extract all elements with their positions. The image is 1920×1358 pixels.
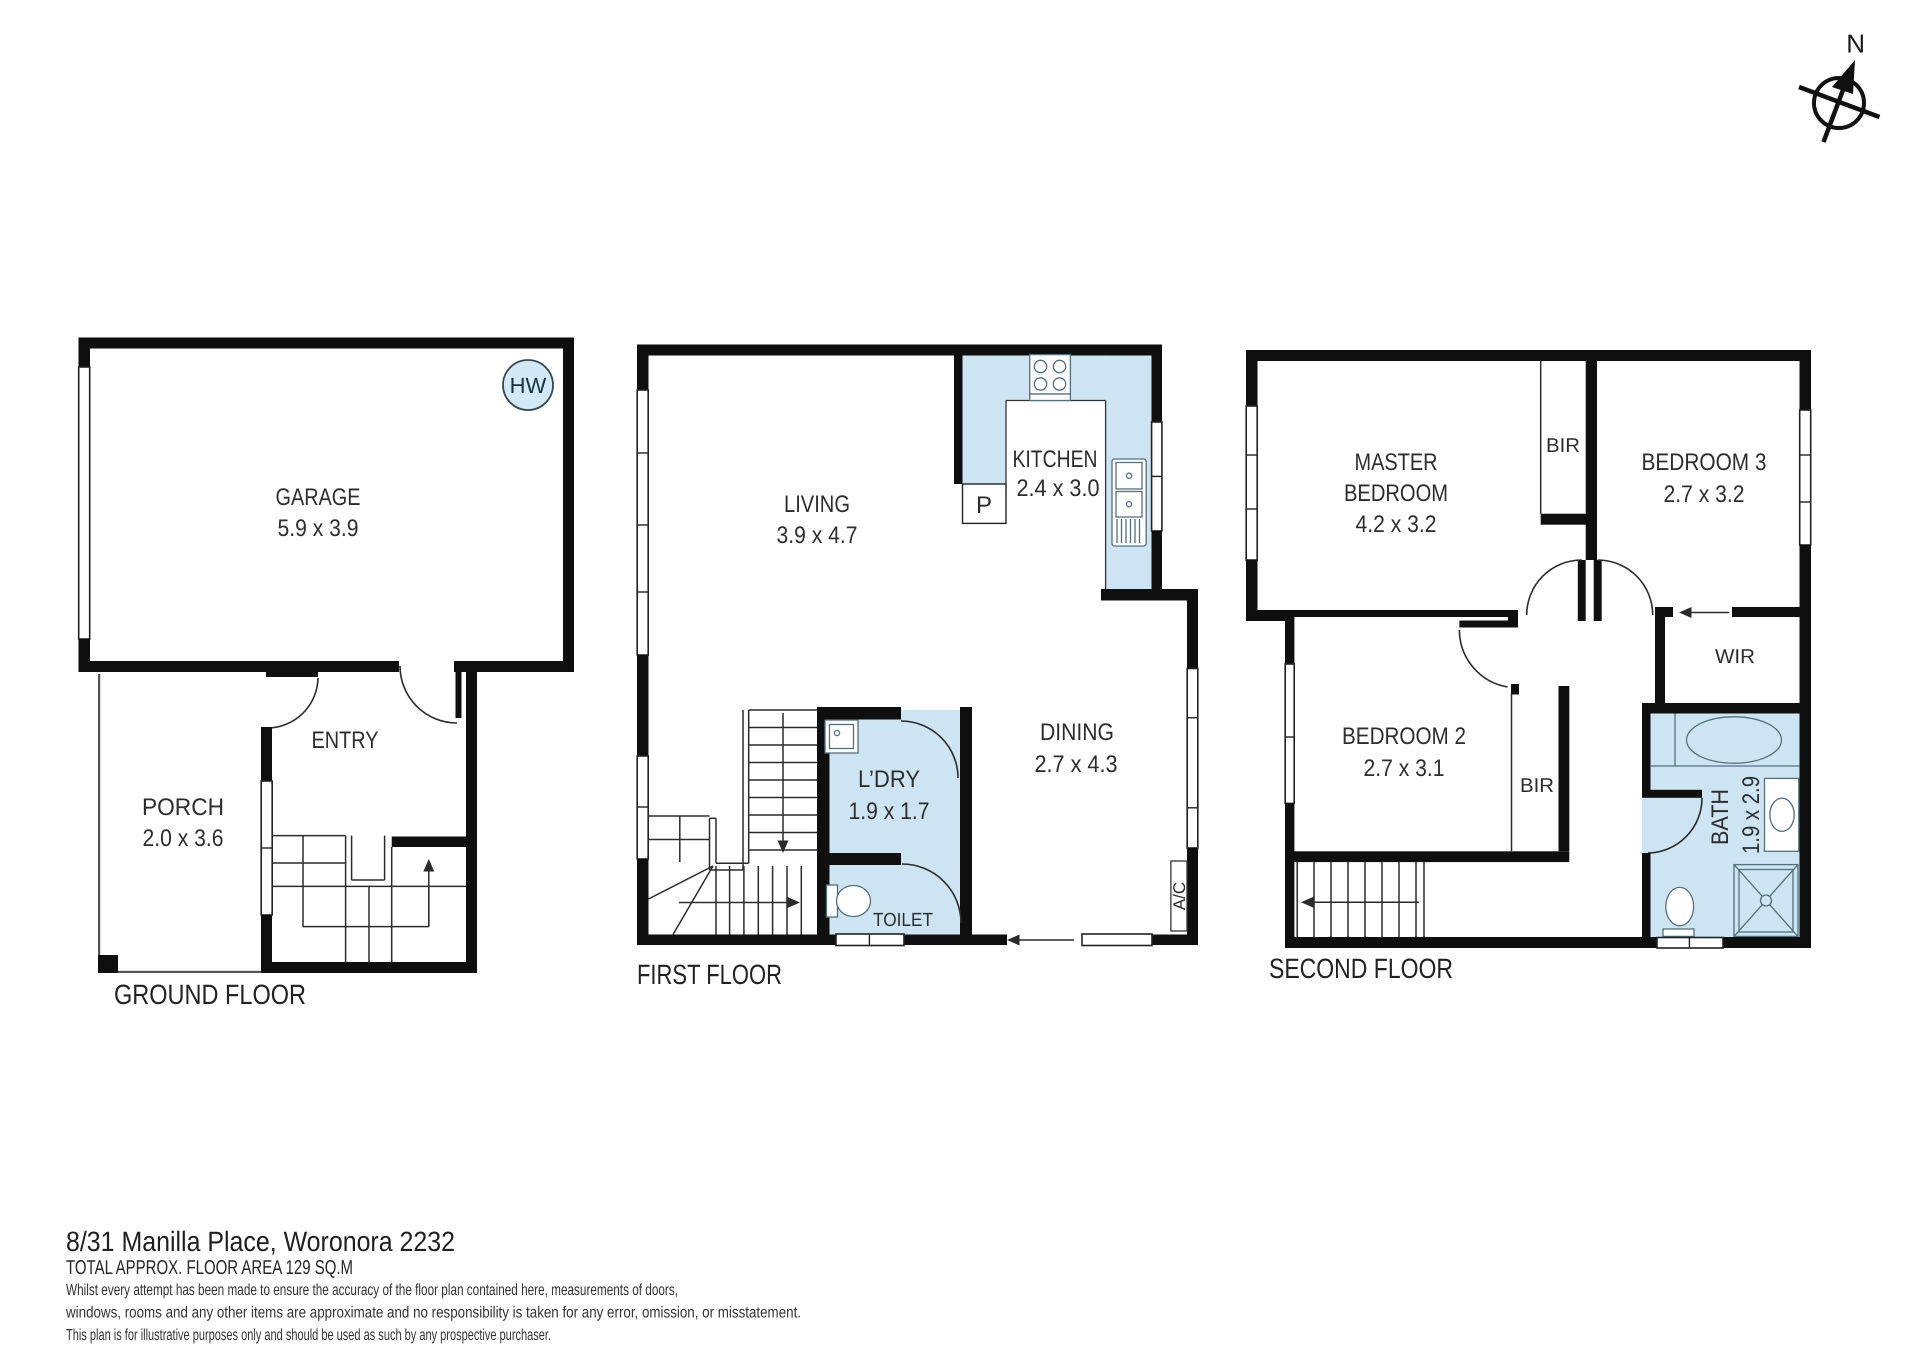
svg-text:1.9 x 1.7: 1.9 x 1.7 (849, 798, 930, 825)
svg-text:BEDROOM 2: BEDROOM 2 (1342, 723, 1466, 750)
svg-text:PORCH: PORCH (142, 794, 224, 821)
svg-text:TOILET: TOILET (873, 910, 933, 931)
svg-text:GARAGE: GARAGE (276, 484, 361, 511)
svg-text:BIR: BIR (1520, 775, 1554, 797)
svg-text:SECOND FLOOR: SECOND FLOOR (1269, 953, 1453, 984)
svg-text:L’DRY: L’DRY (858, 766, 920, 793)
svg-text:2.7 x 3.1: 2.7 x 3.1 (1364, 755, 1445, 782)
svg-text:P: P (976, 492, 992, 519)
svg-text:ENTRY: ENTRY (312, 727, 379, 754)
svg-text:GROUND FLOOR: GROUND FLOOR (114, 979, 306, 1010)
svg-text:TOTAL APPROX. FLOOR AREA 129 S: TOTAL APPROX. FLOOR AREA 129 SQ.M (66, 1257, 353, 1279)
svg-text:8/31 Manilla Place, Woronora 2: 8/31 Manilla Place, Woronora 2232 (66, 1226, 455, 1257)
svg-text:3.9 x 4.7: 3.9 x 4.7 (777, 522, 858, 549)
svg-text:BEDROOM: BEDROOM (1344, 480, 1448, 507)
svg-text:Whilst every attempt has been: Whilst every attempt has been made to en… (66, 1282, 678, 1299)
svg-text:MASTER: MASTER (1355, 449, 1438, 476)
svg-text:HW: HW (510, 373, 547, 398)
svg-text:windows, rooms and any other i: windows, rooms and any other items are a… (65, 1305, 801, 1322)
svg-text:2.4 x 3.0: 2.4 x 3.0 (1017, 475, 1100, 502)
svg-text:DINING: DINING (1040, 719, 1114, 746)
svg-text:BEDROOM 3: BEDROOM 3 (1642, 449, 1767, 476)
svg-text:WIR: WIR (1715, 646, 1755, 668)
svg-text:BATH: BATH (1707, 789, 1734, 845)
svg-text:5.9 x 3.9: 5.9 x 3.9 (278, 515, 359, 542)
svg-text:1.9 x 2.9: 1.9 x 2.9 (1738, 776, 1765, 854)
svg-text:BIR: BIR (1546, 435, 1580, 457)
svg-text:This plan is for illustrative: This plan is for illustrative purposes o… (66, 1327, 551, 1344)
svg-text:4.2 x 3.2: 4.2 x 3.2 (1356, 511, 1437, 538)
svg-text:2.0 x 3.6: 2.0 x 3.6 (143, 825, 224, 852)
svg-text:KITCHEN: KITCHEN (1013, 446, 1098, 473)
svg-text:FIRST FLOOR: FIRST FLOOR (637, 959, 782, 990)
svg-text:A/C: A/C (1170, 882, 1189, 910)
svg-text:2.7 x 4.3: 2.7 x 4.3 (1035, 751, 1118, 778)
svg-text:LIVING: LIVING (784, 491, 850, 518)
svg-text:2.7 x 3.2: 2.7 x 3.2 (1664, 481, 1745, 508)
svg-text:N: N (1846, 29, 1865, 59)
